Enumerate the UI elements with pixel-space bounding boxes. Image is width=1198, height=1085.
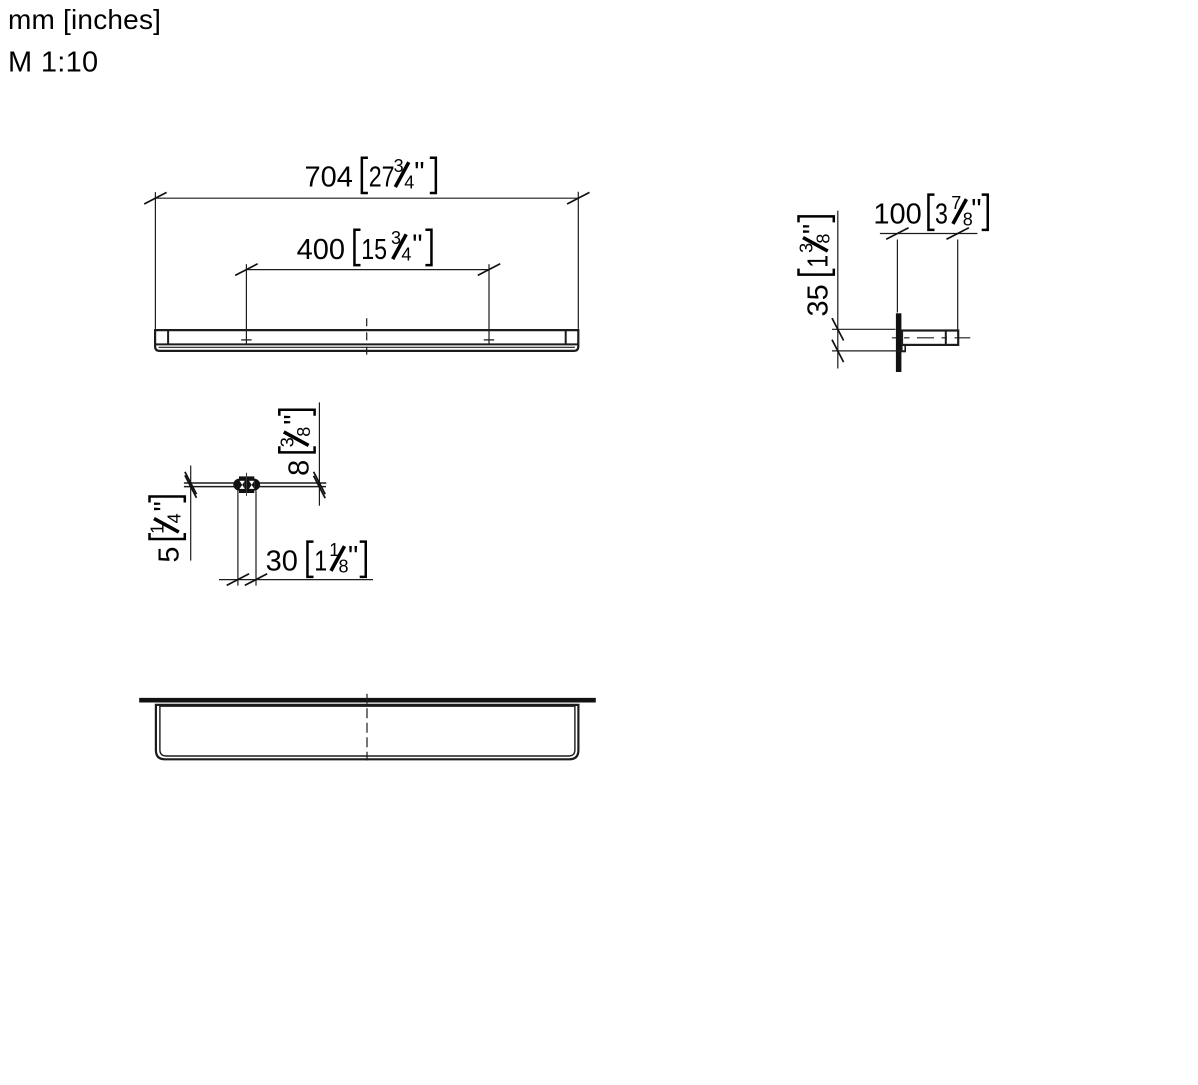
svg-text:1: 1 <box>314 544 327 577</box>
svg-text:": " <box>414 157 424 189</box>
svg-text:4: 4 <box>164 513 184 523</box>
svg-text:8: 8 <box>339 557 349 577</box>
svg-text:30: 30 <box>266 546 298 578</box>
svg-text:": " <box>798 224 830 234</box>
svg-text:1: 1 <box>801 255 834 268</box>
svg-text:27: 27 <box>369 160 395 193</box>
svg-text:3: 3 <box>935 197 948 230</box>
svg-text:4: 4 <box>404 173 414 193</box>
svg-text:": " <box>412 229 422 261</box>
svg-text:4: 4 <box>401 245 411 265</box>
svg-text:mm [inches]: mm [inches] <box>8 4 161 35</box>
svg-text:400: 400 <box>297 234 345 266</box>
svg-text:100: 100 <box>873 199 921 231</box>
svg-text:8: 8 <box>294 427 314 437</box>
svg-text:": " <box>348 541 358 573</box>
svg-text:8: 8 <box>283 460 315 476</box>
svg-text:704: 704 <box>305 162 353 194</box>
svg-text:35: 35 <box>803 284 835 316</box>
svg-text:M 1:10: M 1:10 <box>8 47 98 79</box>
svg-text:": " <box>971 194 981 226</box>
svg-text:": " <box>279 415 311 425</box>
svg-text:15: 15 <box>361 232 387 265</box>
svg-text:5: 5 <box>154 546 186 562</box>
svg-text:": " <box>149 501 181 511</box>
